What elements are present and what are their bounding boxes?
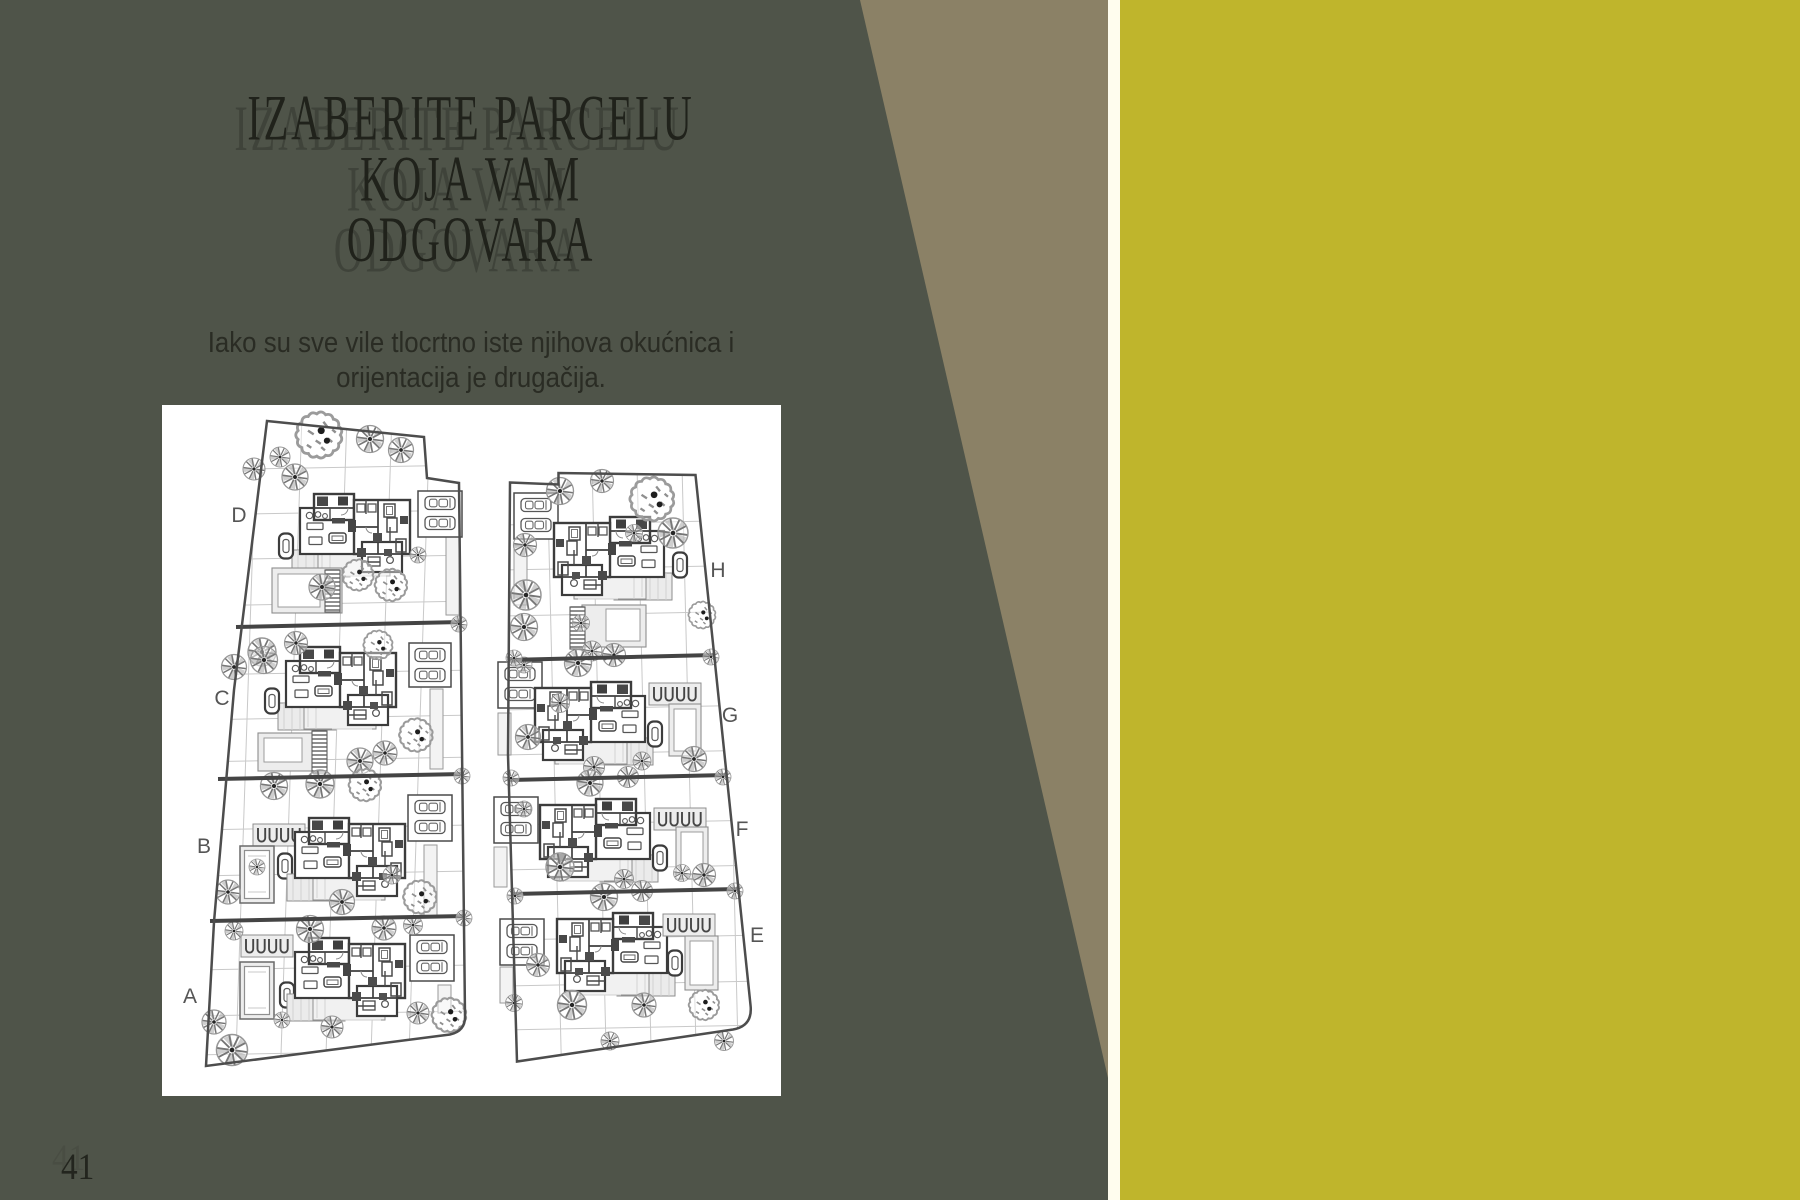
svg-text:G: G [722, 704, 738, 727]
svg-text:E: E [750, 924, 764, 947]
svg-text:C: C [214, 687, 229, 710]
svg-text:A: A [183, 985, 197, 1008]
svg-text:D: D [231, 504, 246, 527]
svg-text:B: B [197, 835, 211, 858]
svg-text:F: F [736, 818, 749, 841]
svg-text:H: H [710, 559, 725, 582]
